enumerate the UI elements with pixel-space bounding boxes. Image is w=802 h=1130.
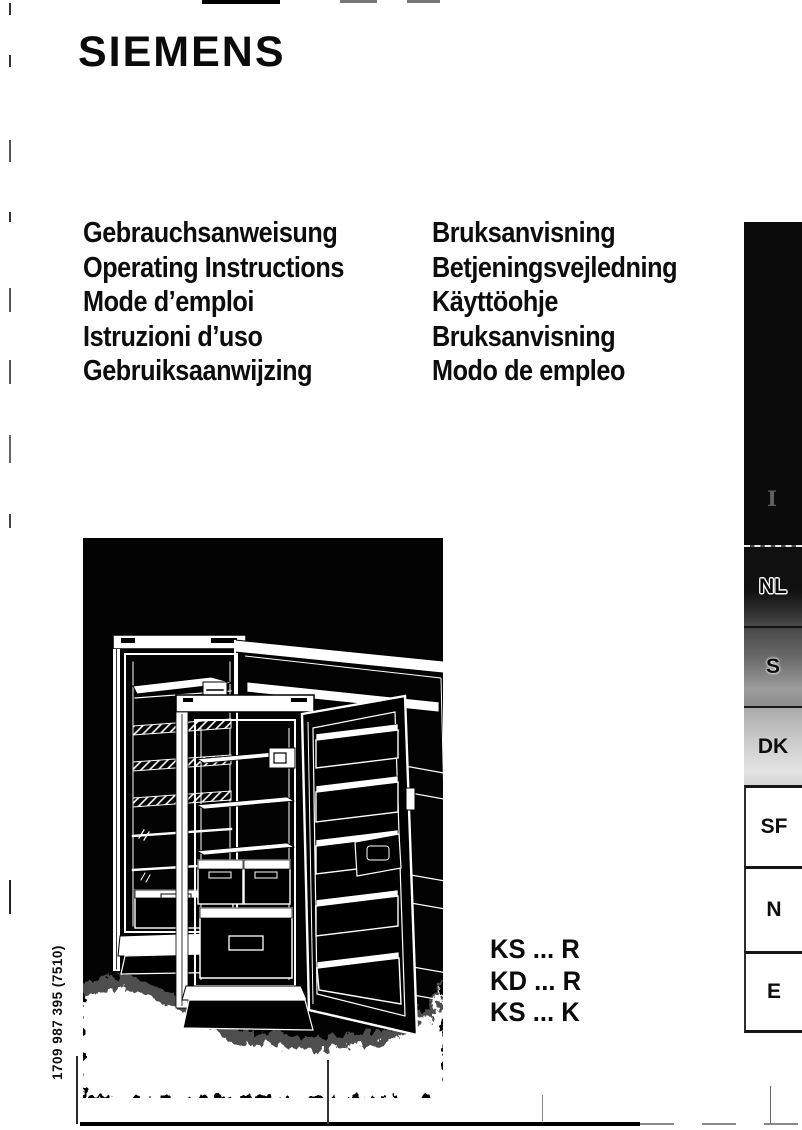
title-line: Mode d’emploi — [83, 285, 344, 320]
scan-artifact — [542, 1095, 543, 1121]
scan-artifact — [202, 0, 280, 4]
sidebar-tab-n: N — [744, 866, 802, 951]
scan-artifact — [9, 3, 11, 15]
sidebar-tab-nl: NL — [744, 545, 802, 626]
sidebar-tab-s: S — [744, 626, 802, 706]
scan-artifact — [9, 514, 11, 528]
scan-artifact — [9, 140, 11, 162]
model-number: KS ... K — [490, 997, 581, 1029]
scan-artifact — [9, 435, 11, 463]
title-column-right: Bruksanvisning Betjeningsvejledning Käyt… — [432, 216, 677, 389]
title-line: Istruzioni d’uso — [83, 320, 344, 355]
scan-artifact — [9, 288, 11, 312]
scan-artifact — [9, 880, 11, 914]
manual-cover-page: { "brand": { "logo": "SIEMENS" }, "title… — [0, 0, 802, 1130]
brand-logo: SIEMENS — [78, 28, 286, 77]
scan-artifact — [9, 212, 11, 222]
scan-artifact — [340, 0, 377, 3]
sidebar-tab-label: E — [767, 980, 781, 1004]
sidebar-tab-label: DK — [758, 735, 788, 759]
model-list: KS ... R KD ... R KS ... K — [490, 934, 581, 1029]
title-column-left: Gebrauchsanweisung Operating Instruction… — [83, 216, 344, 389]
bottom-rule — [80, 1122, 640, 1126]
sidebar-tab-label-i: I — [767, 486, 777, 511]
scan-artifact — [76, 1056, 78, 1124]
model-number: KD ... R — [490, 966, 581, 998]
sidebar-tab-label: NL — [759, 575, 787, 599]
sidebar-tab-label: N — [766, 898, 781, 922]
product-illustration — [83, 538, 443, 1098]
title-line: Käyttöohje — [432, 285, 677, 320]
title-line: Modo de empleo — [432, 354, 677, 389]
scan-artifact — [327, 1060, 329, 1124]
model-number: KS ... R — [490, 934, 581, 966]
title-line: Betjeningsvejledning — [432, 251, 677, 286]
title-line: Gebruiksaanwijzing — [83, 354, 344, 389]
scan-artifact — [9, 360, 11, 384]
title-line: Gebrauchsanweisung — [83, 216, 344, 251]
title-line: Bruksanvisning — [432, 216, 677, 251]
order-number: 1709 987 395 (7510) — [50, 938, 65, 1080]
scan-artifact — [9, 55, 11, 67]
sidebar-tab-label: SF — [761, 815, 788, 839]
refrigerators-line-art-icon — [83, 538, 443, 1098]
sidebar-tab-e: E — [744, 951, 802, 1033]
scan-artifact — [770, 1086, 771, 1124]
sidebar-tab-dark-block: I — [744, 222, 802, 545]
sidebar-tab-label: S — [766, 655, 780, 679]
title-line: Bruksanvisning — [432, 320, 677, 355]
bottom-rule-faint — [640, 1123, 800, 1125]
sidebar-tab-sf: SF — [744, 785, 802, 866]
sidebar-tab-dk: DK — [744, 706, 802, 785]
title-line: Operating Instructions — [83, 251, 344, 286]
scan-artifact — [407, 0, 440, 3]
